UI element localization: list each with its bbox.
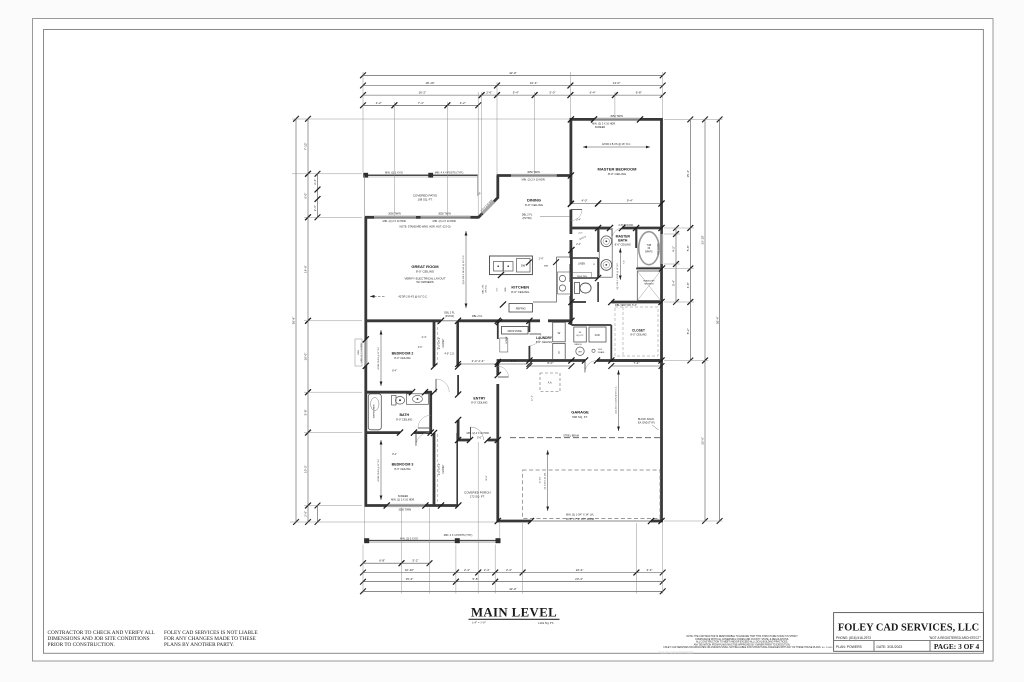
svg-text:2'-4": 2'-4" [313,205,317,211]
svg-text:56'-4": 56'-4" [715,316,719,324]
svg-text:KITCHEN: KITCHEN [511,285,529,290]
svg-text:(2) 1-3/4 X 14 LVL: (2) 1-3/4 X 14 LVL [545,472,547,490]
svg-text:SEAMLESS: SEAMLESS [643,280,655,283]
svg-text:10'-4": 10'-4" [530,81,538,85]
svg-text:WH: WH [578,351,582,353]
svg-text:W: W [558,331,561,335]
svg-text:LINEN: LINEN [578,263,585,266]
svg-text:4'-0": 4'-0" [582,199,588,203]
svg-text:SCREEN: SCREEN [398,495,409,498]
svg-text:2'-0" X 5'-0": 2'-0" X 5'-0" [439,337,441,349]
svg-text:5'-0": 5'-0" [550,91,556,95]
svg-text:2'-0" X 5'-0": 2'-0" X 5'-0" [439,463,441,475]
svg-text:16'-4": 16'-4" [576,568,584,572]
svg-text:W/ OWNERS: W/ OWNERS [416,280,433,284]
svg-text:DROP ZONE: DROP ZONE [508,330,523,333]
svg-text:"NOT A REGISTERED ARCHITECT": "NOT A REGISTERED ARCHITECT" [929,636,981,640]
svg-text:13'-0": 13'-0" [613,81,621,85]
svg-text:FOLEY CAD SERVICES OR AFFILIAT: FOLEY CAD SERVICES OR AFFILIATES OR ASSI… [663,646,821,649]
svg-text:3'-0": 3'-0" [418,347,423,349]
svg-text:ENTRY: ENTRY [473,397,486,401]
svg-text:PLAN: POWERS: PLAN: POWERS [836,645,863,649]
svg-text:ALL CONSTRUCTION TO MEET AND/O: ALL CONSTRUCTION TO MEET AND/OR EXCEED A… [696,641,788,644]
svg-text:3050 TWIN: 3050 TWIN [610,115,623,118]
svg-text:2'-6": 2'-6" [486,91,492,95]
svg-text:10'-3": 10'-3" [304,465,308,473]
svg-text:4'-2": 4'-2" [460,101,466,105]
svg-text:DATE: 3/31/2023: DATE: 3/31/2023 [877,645,903,649]
svg-text:2'-8" W/O DR.: 2'-8" W/O DR. [619,224,634,227]
svg-text:LAUNDRY: LAUNDRY [536,336,553,340]
svg-text:DBL. 2 FL: DBL. 2 FL [483,284,485,294]
svg-text:6'-8": 6'-8" [379,559,385,563]
svg-text:(2) 1-3/4 X 14 LVL @ 16" O.C.: (2) 1-3/4 X 14 LVL @ 16" O.C. [463,254,465,284]
svg-text:2'-4": 2'-4" [422,336,427,339]
svg-text:6'-0": 6'-0" [304,193,308,199]
svg-text:WIN: WIN [544,265,549,267]
svg-text:23'-4": 23'-4" [575,577,583,581]
svg-text:MASTER BEDROOM: MASTER BEDROOM [598,167,638,172]
svg-text:(2) 1-3/4 X 14 LVL @ 16" O.C.: (2) 1-3/4 X 14 LVL @ 16" O.C. [615,386,617,414]
svg-text:FUR.: FUR. [595,334,601,337]
svg-text:SCREEN: SCREEN [595,126,606,129]
svg-text:4'-4": 4'-4" [511,359,517,363]
svg-text:4'-2": 4'-2" [376,101,382,105]
svg-text:7'-4": 7'-4" [418,101,424,105]
svg-text:MIN. (2) 2 X 6'S: MIN. (2) 2 X 6'S [385,172,403,175]
svg-text:2'-4": 2'-4" [539,258,544,261]
svg-text:8'-4": 8'-4" [392,371,397,373]
svg-text:TUB: TUB [647,245,652,247]
svg-text:DINING: DINING [527,198,541,203]
svg-text:7'-2": 7'-2" [624,260,626,264]
svg-text:14'-6": 14'-6" [304,265,308,273]
svg-text:10'-0": 10'-0" [304,353,308,361]
svg-text:42'OR 2 B 4'S @ 16" O.C.: 42'OR 2 B 4'S @ 16" O.C. [378,458,380,482]
svg-text:2'-4": 2'-4" [484,568,490,572]
svg-text:7'-4": 7'-4" [633,361,639,365]
svg-text:SQ. FT.: SQ. FT. [576,335,584,337]
svg-text:WIN: WIN [505,287,507,291]
svg-text:GARAGE: GARAGE [571,410,589,415]
svg-text:5'-8": 5'-8" [686,245,690,251]
svg-text:2'-0": 2'-0" [578,233,583,235]
svg-text:8'-0" CEILING: 8'-0" CEILING [396,417,412,421]
svg-text:506 SQ. FT.: 506 SQ. FT. [572,415,588,419]
svg-text:MIN. (2) 2 X 10 HDR.: MIN. (2) 2 X 10 HDR. [467,432,490,435]
svg-text:MIN. (2) 2 X 10 HDR.: MIN. (2) 2 X 10 HDR. [592,122,616,125]
svg-text:SHOWER: SHOWER [644,284,654,286]
svg-text:BENCH: BENCH [505,337,507,344]
svg-text:3'-0": 3'-0" [477,436,482,439]
svg-text:D: D [558,351,560,355]
svg-text:CLOSET: CLOSET [443,464,445,474]
svg-text:5'-2": 5'-2" [413,559,419,563]
svg-text:3050 TWIN: 3050 TWIN [398,508,411,511]
svg-text:8'-0" CEILING: 8'-0" CEILING [471,401,487,405]
svg-text:COMPLIANCE WITH ALL GOVERNING: COMPLIANCE WITH ALL GOVERNING CODES AND … [695,638,789,641]
svg-text:BEDROOM 2: BEDROOM 2 [392,352,414,356]
svg-text:3'-4": 3'-4" [647,568,653,572]
svg-text:8'-2": 8'-2" [686,328,690,334]
svg-text:BEDROOM 3: BEDROOM 3 [392,463,414,467]
svg-text:8'-0" CEILING: 8'-0" CEILING [536,340,552,344]
svg-text:MIN. (2) 2 X 10 HDR.: MIN. (2) 2 X 10 HDR. [383,220,407,223]
svg-text:EA. END (TYP.): EA. END (TYP.) [638,421,655,424]
svg-text:42'OR 2 B 4'S @ 16" O.C.: 42'OR 2 B 4'S @ 16" O.C. [378,346,380,370]
svg-text:1/4" = 1'-0": 1/4" = 1'-0" [472,621,487,625]
svg-text:PRIOR TO CONSTRUCTION.: PRIOR TO CONSTRUCTION. [48,642,115,648]
svg-text:(P1700): (P1700) [445,315,454,318]
svg-text:PLANS BY ANOTHER PARTY.: PLANS BY ANOTHER PARTY. [164,642,234,648]
svg-text:ANY DEVIATION FROM PLANS MUST: ANY DEVIATION FROM PLANS MUST BE APPROVE… [694,643,791,646]
svg-text:42'-0": 42'-0" [509,71,517,75]
svg-text:2'-4": 2'-4" [576,220,581,222]
svg-text:4'-0" C.O.: 4'-0" C.O. [444,353,455,356]
svg-text:FLR.: FLR. [598,349,603,351]
svg-text:4'-2": 4'-2" [672,246,676,252]
svg-text:FOLEY CAD SERVICES: FOLEY CAD SERVICES [659,651,694,655]
svg-text:8'-0" CEILING: 8'-0" CEILING [416,270,435,274]
svg-text:ALL PLANS: ALL PLANS [822,646,833,649]
svg-text:8'-0" CEILING: 8'-0" CEILING [630,333,646,337]
svg-text:BATH: BATH [399,413,409,417]
svg-text:18'-10": 18'-10" [425,81,434,85]
svg-text:CLOSET: CLOSET [443,338,445,348]
svg-text:9'-4": 9'-4" [627,199,633,203]
svg-text:6'-4": 6'-4" [590,91,596,95]
svg-text:REFRIG: REFRIG [516,307,526,311]
svg-text:DRAIN: DRAIN [598,351,605,354]
svg-text:3050 TWIN: 3050 TWIN [438,213,451,216]
svg-text:(2) 1-3/4 X 14 LVL @ 16" O.C.: (2) 1-3/4 X 14 LVL @ 16" O.C. [617,262,619,289]
svg-text:17'-10": 17'-10" [540,477,542,484]
svg-text:3'-6": 3'-6" [497,287,499,291]
svg-text:8'-0" CEILING: 8'-0" CEILING [511,290,530,294]
svg-text:6'-8": 6'-8" [636,91,642,95]
svg-text:MIN. 4 X 4 POSTS (TYP.): MIN. 4 X 4 POSTS (TYP.) [444,534,473,537]
svg-text:2'-4": 2'-4" [464,568,470,572]
svg-text:2'-6": 2'-6" [304,511,308,517]
svg-text:8'-0": 8'-0" [547,361,553,365]
svg-text:1404 SQ. FT.: 1404 SQ. FT. [538,621,554,625]
svg-text:DBL VENT DR. 5'-0": DBL VENT DR. 5'-0" [615,304,637,307]
svg-text:42'OR 2 B 4'S @ 16" O.C.: 42'OR 2 B 4'S @ 16" O.C. [398,296,427,299]
svg-text:5'-4": 5'-4" [672,280,676,286]
svg-text:BATH: BATH [618,239,628,243]
svg-text:CLOSET: CLOSET [632,329,645,333]
svg-text:A.A.: A.A. [548,382,553,385]
svg-text:MIN. 4 X 4 POSTS (TYP.): MIN. 4 X 4 POSTS (TYP.) [435,172,464,175]
svg-text:33'-10": 33'-10" [701,235,705,244]
svg-text:WDW PEN: WDW PEN [577,276,587,278]
svg-text:NOTE: STANDARD WND. HDR. HGT.: NOTE: STANDARD WND. HDR. HGT. (CS-O) [399,225,450,228]
svg-text:172 SQ. FT.: 172 SQ. FT. [470,494,485,498]
svg-text:GREAT ROOM: GREAT ROOM [411,264,439,269]
svg-text:22'-6": 22'-6" [701,437,705,445]
svg-text:16'-0" X 7'-0" O.H. DOOR: 16'-0" X 7'-0" O.H. DOOR [566,518,595,521]
svg-text:5'-4": 5'-4" [513,91,519,95]
svg-text:FOLEY CAD SERVICES, LLC: FOLEY CAD SERVICES, LLC [838,622,979,633]
svg-text:8'-0" CEILING: 8'-0" CEILING [394,356,410,360]
svg-text:MIN. (2) 2 X 10 HDR.: MIN. (2) 2 X 10 HDR. [391,499,415,502]
svg-text:PAGE: 3 OF 4: PAGE: 3 OF 4 [934,642,980,651]
svg-text:2'-4": 2'-4" [576,244,581,246]
svg-text:10'-10": 10'-10" [405,568,414,572]
svg-text:16'-2": 16'-2" [418,91,426,95]
svg-text:MIN. (2) 2 X 10 HDR.: MIN. (2) 2 X 10 HDR. [522,179,546,182]
svg-text:3'-4": 3'-4" [506,568,512,572]
svg-text:8'-0" CEILING: 8'-0" CEILING [394,467,410,471]
svg-text:MIN. (2) 2 X 10 HDR.: MIN. (2) 2 X 10 HDR. [433,220,457,223]
svg-text:15'-4": 15'-4" [406,577,414,581]
svg-text:8'-0" CEILING: 8'-0" CEILING [525,203,544,207]
svg-text:MIN. (2) 1-3/4" X 14" LVL: MIN. (2) 1-3/4" X 14" LVL [566,513,595,516]
svg-text:2'-4" 2'-4": 2'-4" 2'-4" [472,359,485,363]
svg-text:4'-8": 4'-8" [686,282,690,288]
svg-text:5'-8": 5'-8" [473,577,479,581]
svg-text:5'-8": 5'-8" [304,409,308,415]
svg-text:11'-8": 11'-8" [486,475,488,480]
svg-text:5036 SLIDER: 5036 SLIDER [658,243,660,255]
svg-text:MAIN LEVEL: MAIN LEVEL [471,606,557,620]
svg-text:STEEL BEAM: STEEL BEAM [563,434,579,437]
svg-text:17'-2": 17'-2" [531,395,533,401]
svg-text:(P1700): (P1700) [486,285,488,292]
svg-text:(P2700): (P2700) [523,217,532,220]
svg-text:15'-4": 15'-4" [686,170,690,178]
svg-text:8'-0" CEILING: 8'-0" CEILING [608,172,627,176]
svg-text:MIN. (2) 2 X 6'S: MIN. (2) 2 X 6'S [400,537,418,540]
svg-text:3050 TWIN: 3050 TWIN [527,171,540,174]
svg-text:108 SQ. FT.: 108 SQ. FT. [418,197,433,201]
svg-text:42'-0": 42'-0" [509,587,517,591]
svg-text:42'OR 2 B 4'S @ 16" O.C.: 42'OR 2 B 4'S @ 16" O.C. [602,143,631,146]
svg-text:8'-4": 8'-4" [392,454,397,456]
svg-text:2'-4": 2'-4" [313,179,317,185]
svg-text:8'-0" CEILING: 8'-0" CEILING [615,242,631,246]
svg-text:7'-10": 7'-10" [304,142,308,150]
svg-text:TUB/SHOWER: TUB/SHOWER [374,404,376,419]
svg-text:DW: DW [521,264,526,268]
svg-text:BENCH: BENCH [574,344,582,346]
svg-text:NOTE: THE CONTRACTOR IS RESPON: NOTE: THE CONTRACTOR IS RESPONSIBLE TO E… [686,635,798,638]
svg-text:BPATS: BPATS [645,250,653,253]
svg-text:▾: ▾ [593,263,594,266]
svg-text:DBL 2 FL: DBL 2 FL [472,315,483,318]
svg-text:56'-8": 56'-8" [292,317,296,325]
svg-text:PHONE: (816) 516-2973: PHONE: (816) 516-2973 [836,636,871,640]
